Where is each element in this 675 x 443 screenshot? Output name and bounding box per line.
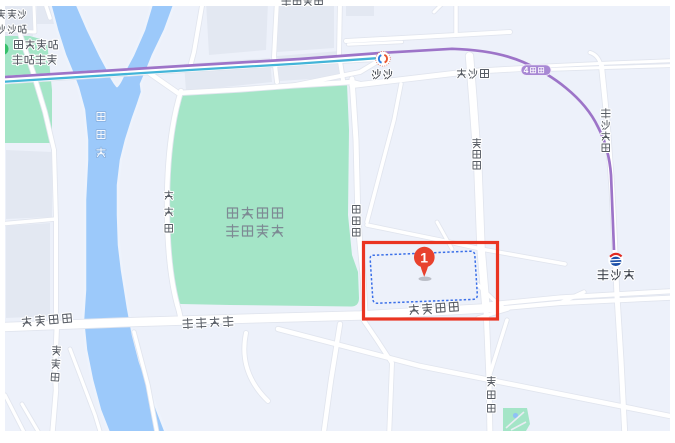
svg-text:1: 1 [420,250,428,266]
svg-text:4: 4 [524,65,529,75]
